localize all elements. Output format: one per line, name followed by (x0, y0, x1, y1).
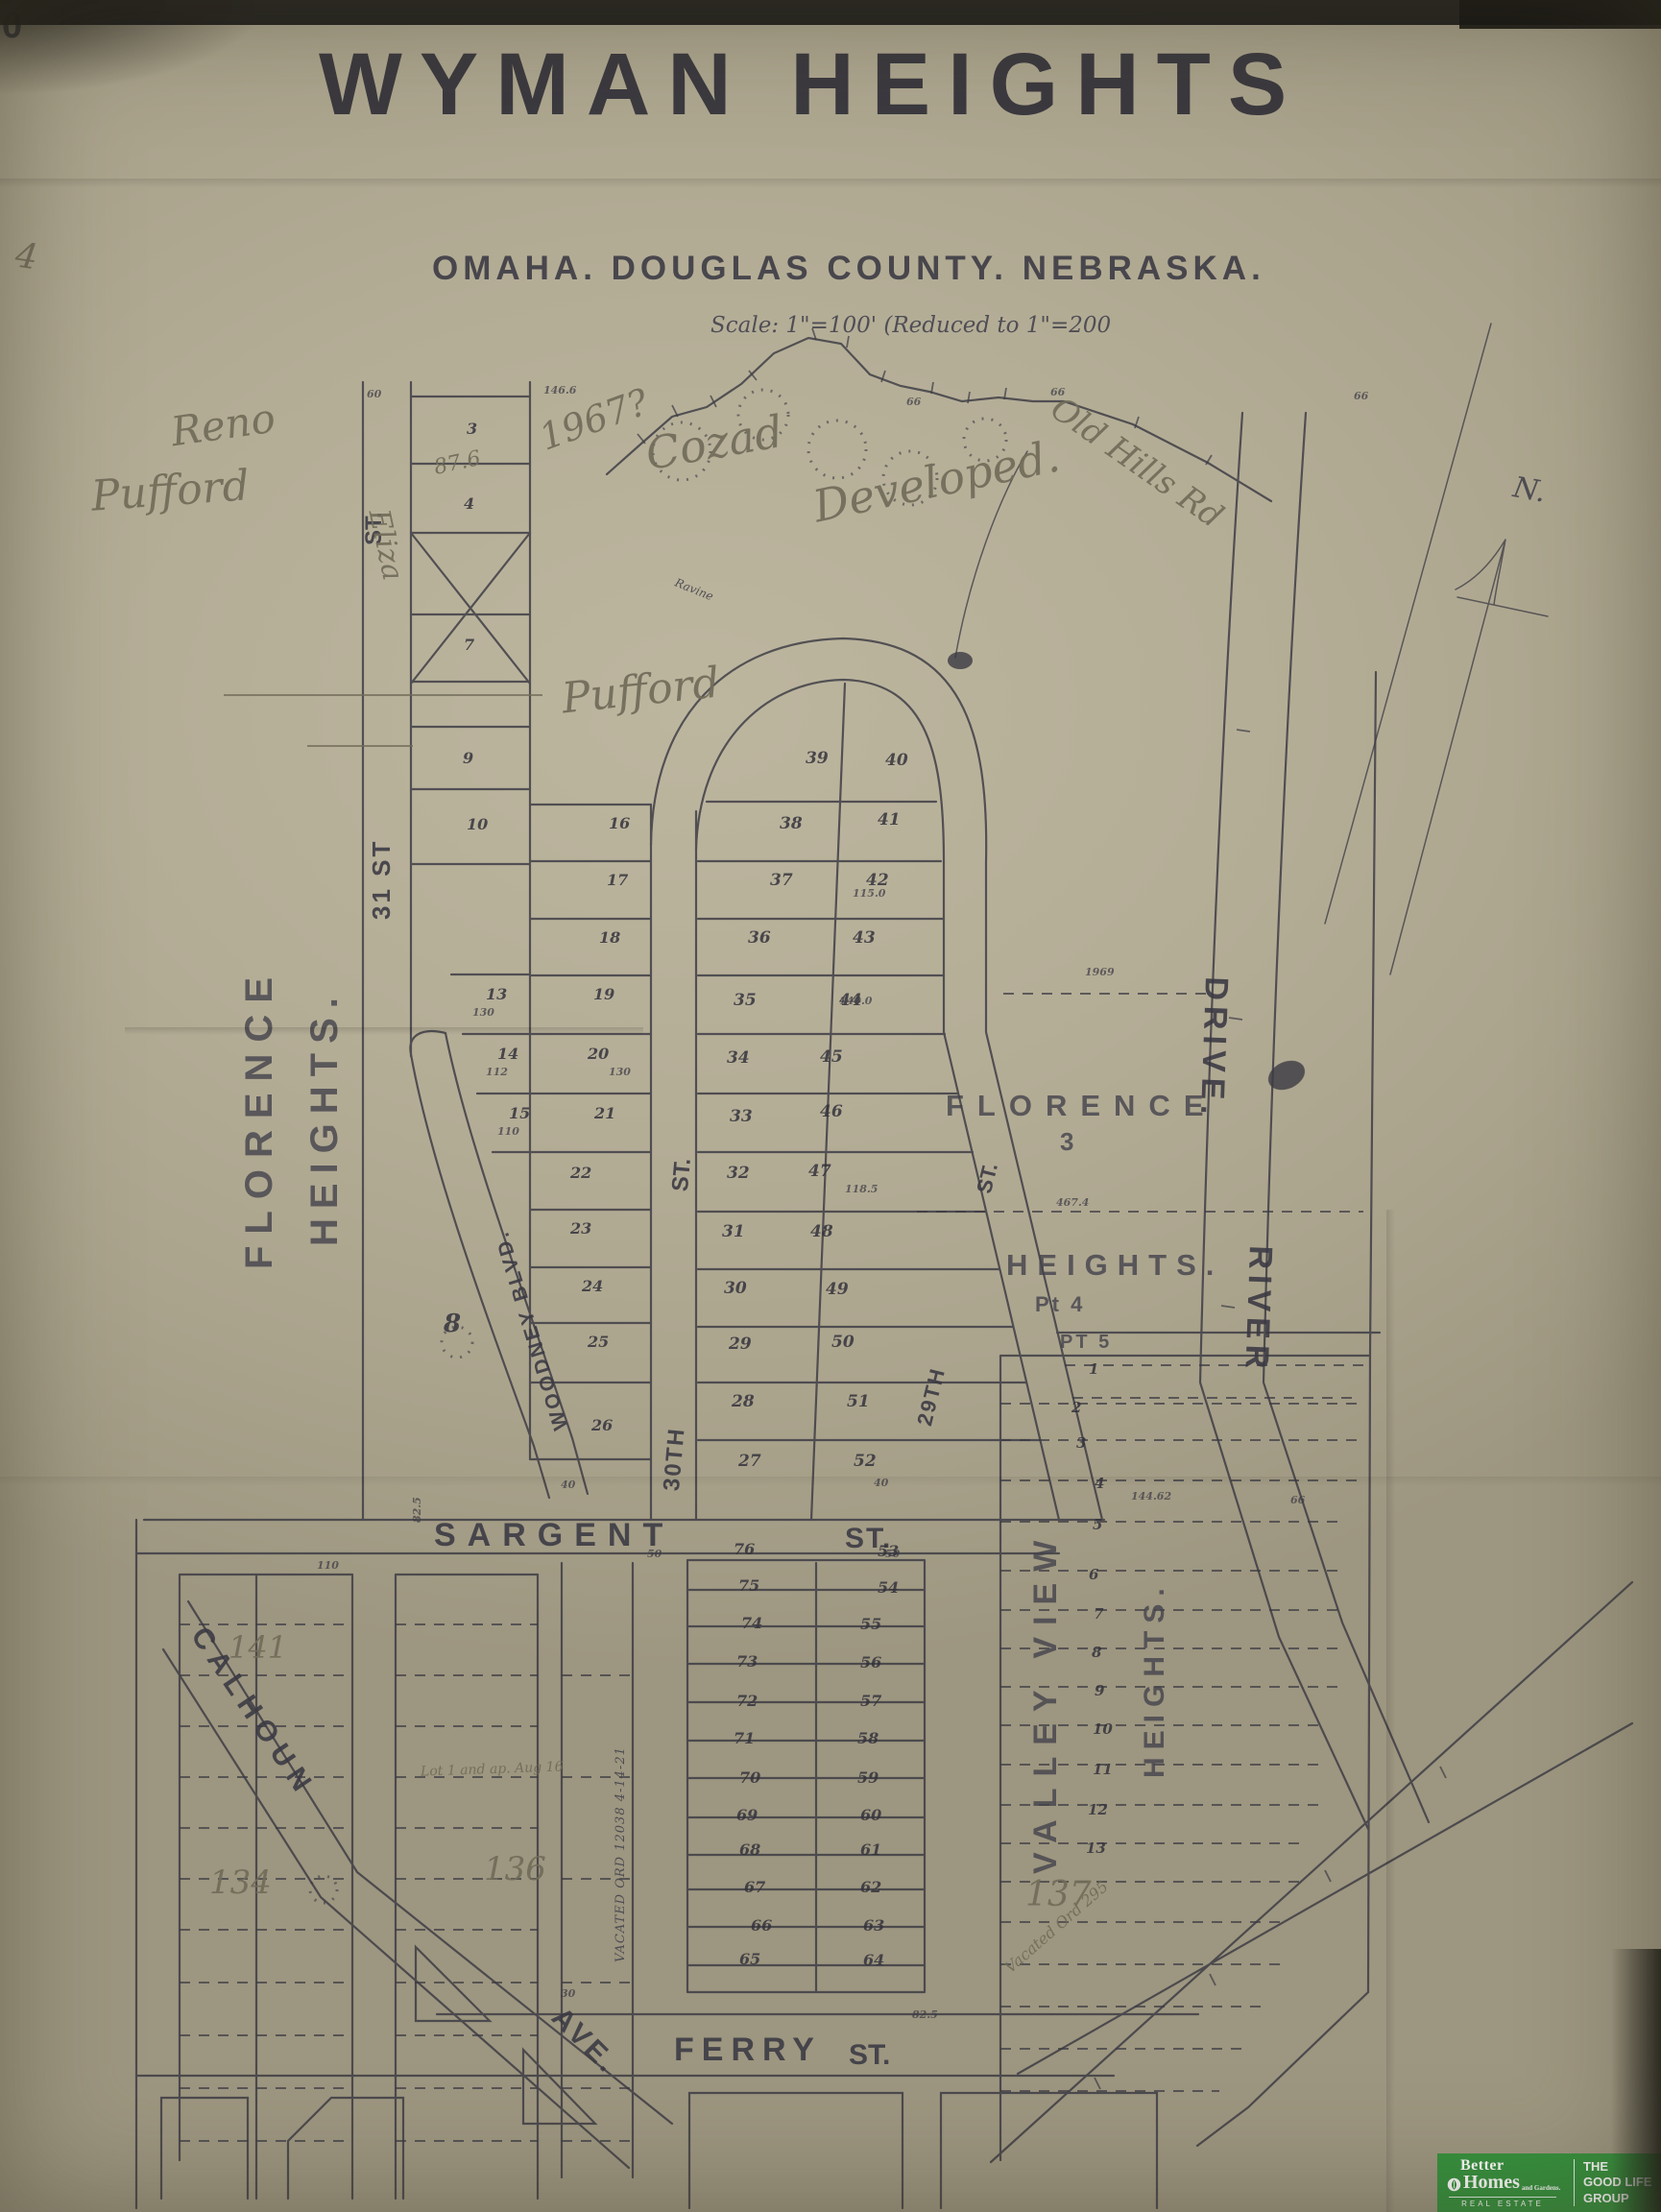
lot-number: 19 (593, 985, 614, 1003)
lot-number: 31 (722, 1222, 745, 1241)
lot-number: 10 (467, 815, 488, 833)
lot-number: 3 (467, 420, 477, 438)
lot-number: 6 (1089, 1566, 1098, 1583)
lot-number: 20 (588, 1045, 609, 1063)
dimension-label: 110 (497, 1125, 519, 1138)
dimension-label: 130 (472, 1006, 494, 1019)
bhg-homes: Homes (1463, 2172, 1520, 2194)
lot-number: 55 (860, 1615, 881, 1633)
lot-number: 48 (810, 1222, 833, 1241)
lot-number: 21 (594, 1104, 615, 1122)
lot-number: 46 (820, 1102, 843, 1121)
lot-number: 36 (748, 928, 771, 948)
bhg-logo-brand: Better Homes and Gardens. REAL ESTATE (1437, 2153, 1574, 2212)
lot-number: 29 (729, 1334, 752, 1354)
dimension-label: 50 (885, 1548, 900, 1560)
lot-number: 4 (464, 494, 474, 513)
scan-smear-bottom-right (1611, 1949, 1661, 2212)
lot-number: 22 (570, 1164, 591, 1182)
lot-number: 69 (736, 1806, 758, 1824)
lot-number: 54 (878, 1578, 899, 1597)
lot-number: 1 (1089, 1360, 1098, 1378)
dimension-label: 115.0 (853, 887, 885, 900)
lot-number: 51 (847, 1392, 870, 1411)
lot-number: 2 (1071, 1399, 1081, 1416)
plat-map: 0 WYMAN HEIGHTS OMAHA. DOUGLAS COUNTY. N… (0, 0, 1661, 2212)
lot-number: 40 (885, 751, 908, 770)
lot-number: 14 (497, 1045, 518, 1063)
lot-number: 8 (1092, 1644, 1101, 1661)
lot-number: 27 (738, 1452, 761, 1471)
lot-number: 43 (853, 928, 876, 948)
lot-number: 64 (863, 1951, 884, 1969)
lot-number-layer: 3479101314151617181920212223242526393837… (0, 0, 1661, 2212)
lot-number: 39 (806, 749, 829, 768)
lot-number: 13 (1086, 1839, 1106, 1857)
dimension-label: 66 (1290, 1494, 1305, 1506)
lot-number: 25 (588, 1333, 609, 1351)
lot-number: 63 (863, 1916, 884, 1935)
scan-edge-top-right (1459, 0, 1661, 29)
lot-number: 16 (609, 814, 630, 832)
dimension-label: 1969 (1085, 966, 1115, 978)
lot-number: 38 (780, 814, 803, 833)
lot-number: 76 (734, 1540, 755, 1558)
lot-number: 72 (736, 1692, 758, 1710)
lot-number: 24 (582, 1277, 603, 1295)
lot-number: 75 (738, 1576, 759, 1595)
lot-number: 35 (734, 991, 757, 1010)
lot-number: 17 (607, 871, 628, 889)
dimension-label: 130 (609, 1066, 631, 1078)
dimension-label: 40 (874, 1477, 888, 1489)
dimension-label: 30 (561, 1987, 575, 2000)
dimension-label: 82.5 (912, 2008, 938, 2021)
lot-number: 70 (739, 1768, 760, 1787)
lot-number: 58 (857, 1729, 879, 1747)
lot-number: 33 (730, 1107, 753, 1126)
lot-number: 32 (727, 1164, 750, 1183)
dimension-label: 40 (561, 1479, 575, 1491)
lot-number: 47 (808, 1162, 831, 1181)
lot-number: 11 (1093, 1761, 1113, 1778)
lot-number: 68 (739, 1840, 760, 1859)
lot-number: 26 (591, 1416, 613, 1434)
dimension-label: 144.62 (1131, 1490, 1171, 1503)
lot-number: 45 (820, 1047, 843, 1067)
dimension-label: 467.4 (1056, 1196, 1089, 1209)
dimension-label: 118.5 (845, 1183, 878, 1195)
lot-number: 4 (1095, 1475, 1104, 1492)
lot-number: 65 (739, 1950, 760, 1968)
bhg-and-gardens: and Gardens. (1522, 2184, 1560, 2192)
lot-number: 9 (1095, 1682, 1104, 1699)
lot-number: 30 (724, 1279, 747, 1298)
lot-number: 67 (744, 1878, 765, 1896)
lot-number: 50 (831, 1333, 855, 1352)
dimension-label: 82.5 (411, 1497, 423, 1523)
lot-number: 73 (736, 1652, 758, 1671)
lot-number: 61 (860, 1840, 881, 1859)
lot-number: 10 (1093, 1720, 1113, 1738)
lot-number: 56 (860, 1653, 881, 1671)
lot-number: 62 (860, 1878, 881, 1896)
lot-number: 15 (509, 1104, 530, 1122)
lot-number: 57 (860, 1692, 881, 1710)
lot-number: 34 (727, 1048, 750, 1068)
dimension-label: 140.0 (839, 995, 872, 1007)
lot-number: 66 (751, 1916, 772, 1935)
lot-number: 71 (734, 1729, 755, 1747)
lot-number: 5 (1093, 1516, 1102, 1533)
dimension-label: 66 (1050, 386, 1065, 398)
lot-number: 52 (854, 1452, 877, 1471)
dimension-label: 112 (486, 1066, 508, 1078)
lot-number: 7 (464, 636, 474, 654)
dimension-label: 66 (906, 396, 921, 408)
lot-number: 28 (732, 1392, 755, 1411)
dimension-label: 60 (367, 388, 381, 400)
bhg-real-estate: REAL ESTATE (1449, 2197, 1556, 2208)
lot-number: 59 (857, 1768, 879, 1787)
dimension-label: 66 (1354, 390, 1368, 402)
dimension-label: 110 (317, 1559, 339, 1572)
lot-number: 13 (486, 985, 507, 1003)
lot-number: 49 (826, 1280, 849, 1299)
lot-number: 12 (1088, 1801, 1108, 1818)
dimension-label: 146.6 (543, 384, 576, 397)
corner-smudge (0, 0, 269, 96)
lot-number: 41 (878, 810, 901, 829)
lot-number: 7 (1094, 1605, 1103, 1623)
lot-number: 3 (1076, 1434, 1086, 1452)
lot-number: 37 (770, 871, 793, 890)
lot-number: 9 (463, 749, 473, 767)
dimension-label: 50 (647, 1548, 662, 1560)
bhg-leaf-icon (1447, 2176, 1461, 2190)
lot-number: 74 (741, 1614, 762, 1632)
lot-number: 18 (599, 928, 620, 947)
lot-number: 60 (860, 1806, 881, 1824)
lot-number: 23 (570, 1219, 591, 1238)
